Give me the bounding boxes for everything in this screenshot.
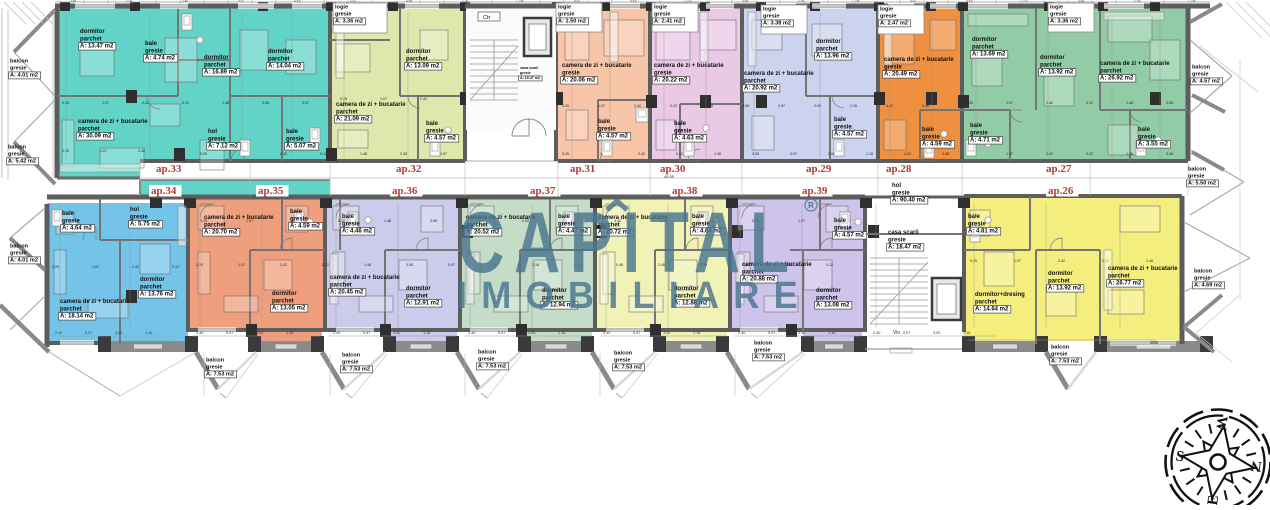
svg-text:3.65: 3.65 xyxy=(1078,0,1084,3)
svg-text:dormitor: dormitor xyxy=(80,29,105,35)
svg-text:0.25: 0.25 xyxy=(62,149,69,153)
svg-text:A: 4.59 m2: A: 4.59 m2 xyxy=(290,224,321,230)
svg-text:4.42: 4.42 xyxy=(886,104,893,108)
svg-text:gresie: gresie xyxy=(763,14,779,20)
svg-text:A: 7.53 m2: A: 7.53 m2 xyxy=(342,367,370,373)
svg-text:A: 20.45 m2: A: 20.45 m2 xyxy=(330,290,364,296)
svg-text:A: 13.05 m2: A: 13.05 m2 xyxy=(272,306,306,312)
svg-text:dormitor: dormitor xyxy=(406,286,431,292)
svg-text:ap.33: ap.33 xyxy=(156,163,182,175)
svg-text:3.65: 3.65 xyxy=(406,0,412,3)
svg-text:0.12: 0.12 xyxy=(172,265,179,269)
svg-text:A: 3.38 m2: A: 3.38 m2 xyxy=(763,21,791,27)
svg-text:parchet: parchet xyxy=(330,282,352,288)
svg-text:2.40: 2.40 xyxy=(854,0,860,3)
svg-text:1.48: 1.48 xyxy=(384,219,391,223)
svg-text:balcon: balcon xyxy=(10,59,29,65)
svg-text:ap.36: ap.36 xyxy=(392,185,418,197)
svg-text:parchet: parchet xyxy=(140,284,162,290)
svg-text:2.40: 2.40 xyxy=(468,331,475,335)
svg-text:A: 20.22 m2: A: 20.22 m2 xyxy=(654,78,688,84)
svg-text:2.40: 2.40 xyxy=(873,331,880,335)
svg-text:0.12: 0.12 xyxy=(320,152,327,156)
svg-text:1.16: 1.16 xyxy=(850,104,857,108)
svg-text:1.48: 1.48 xyxy=(1146,259,1153,263)
svg-text:gresie: gresie xyxy=(562,70,580,76)
svg-text:camera de zi + bucatarie: camera de zi + bucatarie xyxy=(78,119,148,125)
svg-text:A: 18.14 m2: A: 18.14 m2 xyxy=(60,314,94,320)
svg-text:parchet: parchet xyxy=(744,78,766,84)
svg-text:3.08: 3.08 xyxy=(262,101,269,105)
svg-text:1.07: 1.07 xyxy=(1022,0,1028,3)
svg-text:camera de zi + bucatarie: camera de zi + bucatarie xyxy=(330,275,400,281)
svg-text:1.07: 1.07 xyxy=(798,219,805,223)
svg-text:A: 18.47 m2: A: 18.47 m2 xyxy=(520,76,540,80)
svg-text:0.97: 0.97 xyxy=(903,331,910,335)
svg-text:2.40: 2.40 xyxy=(182,0,188,3)
svg-text:ap.27: ap.27 xyxy=(1046,163,1072,175)
svg-text:bale: bale xyxy=(970,123,983,129)
svg-text:2.40: 2.40 xyxy=(738,331,745,335)
svg-text:0.25: 0.25 xyxy=(966,101,973,105)
svg-text:A: 21.09 m2: A: 21.09 m2 xyxy=(336,117,370,123)
svg-text:A: 4.71 m2: A: 4.71 m2 xyxy=(970,138,1001,144)
svg-text:A: 4.81 m2: A: 4.81 m2 xyxy=(968,229,999,235)
svg-text:3.00: 3.00 xyxy=(933,331,940,335)
svg-text:logie: logie xyxy=(335,5,348,11)
svg-text:1.20: 1.20 xyxy=(798,0,804,3)
svg-text:1.07: 1.07 xyxy=(1014,259,1021,263)
svg-text:0.25: 0.25 xyxy=(562,152,569,156)
svg-text:3.00: 3.00 xyxy=(528,331,535,335)
svg-text:3.00: 3.00 xyxy=(393,331,400,335)
svg-text:A: 7.53 m2: A: 7.53 m2 xyxy=(206,372,234,378)
svg-text:dormitor: dormitor xyxy=(268,49,293,55)
svg-text:gresie: gresie xyxy=(335,12,351,18)
svg-text:0.25: 0.25 xyxy=(62,101,69,105)
svg-text:casa scarii: casa scarii xyxy=(888,230,919,236)
svg-text:3.00: 3.00 xyxy=(256,331,263,335)
svg-text:A: 7.53 m2: A: 7.53 m2 xyxy=(614,365,642,371)
svg-text:1.07: 1.07 xyxy=(1006,101,1013,105)
svg-text:A: 13.47 m2: A: 13.47 m2 xyxy=(80,44,114,50)
svg-text:A: 4.01 m2: A: 4.01 m2 xyxy=(10,73,38,79)
svg-text:A: 13.69 m2: A: 13.69 m2 xyxy=(972,52,1006,58)
svg-text:bale: bale xyxy=(145,41,158,47)
svg-text:1.07: 1.07 xyxy=(380,97,387,101)
svg-text:0.25: 0.25 xyxy=(196,263,203,267)
svg-text:A: 4.69 m2: A: 4.69 m2 xyxy=(1194,283,1222,289)
svg-text:0.12: 0.12 xyxy=(1086,101,1093,105)
svg-text:A: 4.57 m2: A: 4.57 m2 xyxy=(426,136,457,142)
svg-text:3.00: 3.00 xyxy=(663,331,670,335)
svg-text:1.48: 1.48 xyxy=(364,263,371,267)
svg-text:A: 7.12 m2: A: 7.12 m2 xyxy=(208,144,239,150)
svg-text:parchet: parchet xyxy=(60,306,82,312)
svg-text:1.07: 1.07 xyxy=(598,104,605,108)
svg-text:gresie: gresie xyxy=(834,225,852,231)
svg-text:gresie: gresie xyxy=(130,214,148,220)
svg-text:A: 12.91 m2: A: 12.91 m2 xyxy=(406,301,440,307)
svg-text:3.65: 3.65 xyxy=(70,0,76,3)
svg-text:balcon: balcon xyxy=(1188,167,1207,173)
svg-text:A: 20.06 m2: A: 20.06 m2 xyxy=(562,78,596,84)
svg-text:2.42: 2.42 xyxy=(634,104,641,108)
svg-text:gresie: gresie xyxy=(1138,134,1156,140)
svg-text:1.48: 1.48 xyxy=(706,104,713,108)
svg-text:1.48: 1.48 xyxy=(1126,152,1133,156)
svg-text:A: 20.92 m2: A: 20.92 m2 xyxy=(744,86,778,92)
svg-text:4.42: 4.42 xyxy=(294,0,300,3)
svg-text:3.08: 3.08 xyxy=(400,152,407,156)
svg-text:balcon: balcon xyxy=(754,341,773,347)
svg-text:parchet: parchet xyxy=(1108,273,1130,279)
svg-text:ap.32: ap.32 xyxy=(396,163,422,175)
svg-text:balcon: balcon xyxy=(1192,65,1211,71)
svg-text:3.08: 3.08 xyxy=(752,152,759,156)
svg-text:2.40: 2.40 xyxy=(518,0,524,3)
svg-text:gresie: gresie xyxy=(1051,352,1067,358)
svg-text:A: 2.47 m2: A: 2.47 m2 xyxy=(880,21,908,27)
svg-text:balcon: balcon xyxy=(206,358,225,364)
svg-text:2.40: 2.40 xyxy=(196,331,203,335)
svg-text:R: R xyxy=(808,201,814,210)
svg-text:ap.26: ap.26 xyxy=(1048,185,1074,197)
svg-text:A: 13.92 m2: A: 13.92 m2 xyxy=(1048,286,1082,292)
svg-text:bale: bale xyxy=(342,214,355,220)
svg-text:A: 4.59 m2: A: 4.59 m2 xyxy=(922,142,953,148)
svg-text:balcon: balcon xyxy=(1194,269,1213,275)
svg-text:A: 4.74 m2: A: 4.74 m2 xyxy=(145,56,176,62)
svg-text:A: 5.07 m2: A: 5.07 m2 xyxy=(286,144,317,150)
svg-text:hol: hol xyxy=(892,183,901,189)
svg-text:A: 18.47 m2: A: 18.47 m2 xyxy=(888,245,922,251)
svg-text:ap.31: ap.31 xyxy=(570,163,595,175)
svg-text:1.07: 1.07 xyxy=(100,149,107,153)
svg-text:gresie: gresie xyxy=(8,152,24,158)
svg-text:A: 5.50 m2: A: 5.50 m2 xyxy=(1188,181,1216,187)
svg-text:gresie: gresie xyxy=(654,70,672,76)
svg-text:gresie: gresie xyxy=(888,237,906,243)
svg-text:4.42: 4.42 xyxy=(630,0,636,3)
svg-text:A: 7.53 m2: A: 7.53 m2 xyxy=(1051,359,1079,365)
svg-text:camera de zi + bucatarie: camera de zi + bucatarie xyxy=(60,299,130,305)
svg-text:gresie: gresie xyxy=(754,348,770,354)
svg-text:logie: logie xyxy=(763,7,776,13)
svg-text:parchet: parchet xyxy=(816,295,838,301)
svg-text:dormitor: dormitor xyxy=(816,39,841,45)
svg-text:A: 3.36 m2: A: 3.36 m2 xyxy=(1050,19,1078,25)
svg-text:gresie: gresie xyxy=(426,128,444,134)
svg-text:A: 4.57 m2: A: 4.57 m2 xyxy=(834,233,865,239)
svg-text:2.42: 2.42 xyxy=(1046,152,1053,156)
svg-text:1.07: 1.07 xyxy=(1006,152,1013,156)
svg-text:4.42: 4.42 xyxy=(904,152,911,156)
svg-text:46.55: 46.55 xyxy=(664,174,675,179)
svg-text:gresie: gresie xyxy=(968,221,986,227)
svg-text:parchet: parchet xyxy=(975,299,997,305)
svg-text:A: 3.55 m2: A: 3.55 m2 xyxy=(1138,142,1169,148)
svg-text:A: 4.57 m2: A: 4.57 m2 xyxy=(834,132,865,138)
svg-text:A: 4.57 m2: A: 4.57 m2 xyxy=(598,134,629,140)
svg-text:0.97: 0.97 xyxy=(448,263,455,267)
svg-text:camera de zi + bucatarie: camera de zi + bucatarie xyxy=(654,63,724,69)
svg-text:camera de zi + bucatarie: camera de zi + bucatarie xyxy=(744,71,814,77)
svg-text:3.08: 3.08 xyxy=(1166,101,1173,105)
svg-text:parchet: parchet xyxy=(816,46,838,52)
svg-text:2.40: 2.40 xyxy=(603,331,610,335)
svg-text:IMOBILIARE: IMOBILIARE xyxy=(457,273,812,316)
svg-text:parchet: parchet xyxy=(972,44,994,50)
svg-text:A: 4.46 m2: A: 4.46 m2 xyxy=(342,229,373,235)
svg-text:1.20: 1.20 xyxy=(126,0,132,3)
svg-text:1.48: 1.48 xyxy=(222,101,229,105)
svg-text:2.40: 2.40 xyxy=(55,331,62,335)
svg-text:3.08: 3.08 xyxy=(1166,152,1173,156)
svg-text:2.42: 2.42 xyxy=(280,263,287,267)
svg-text:1.16: 1.16 xyxy=(145,331,152,335)
svg-text:A: 90.40 m2: A: 90.40 m2 xyxy=(892,198,926,204)
svg-text:gresie: gresie xyxy=(614,358,630,364)
svg-text:hol: hol xyxy=(208,129,217,135)
svg-text:bale: bale xyxy=(922,127,935,133)
svg-text:dormitor: dormitor xyxy=(406,49,431,55)
svg-text:A: 20.49 m2: A: 20.49 m2 xyxy=(884,72,918,78)
svg-text:camera de zi + bucatarie: camera de zi + bucatarie xyxy=(562,63,632,69)
svg-text:ap.34: ap.34 xyxy=(151,185,177,197)
svg-text:camera de zi + bucatarie: camera de zi + bucatarie xyxy=(204,215,274,221)
svg-text:dormitor: dormitor xyxy=(816,288,841,294)
svg-text:3.00: 3.00 xyxy=(798,331,805,335)
svg-text:0.97: 0.97 xyxy=(440,152,447,156)
svg-text:0.12: 0.12 xyxy=(182,101,189,105)
svg-text:parchet: parchet xyxy=(80,36,102,42)
svg-text:balcon: balcon xyxy=(1051,345,1070,351)
svg-text:0.12: 0.12 xyxy=(670,104,677,108)
svg-text:balcon: balcon xyxy=(614,351,633,357)
svg-text:A: 7.53 m2: A: 7.53 m2 xyxy=(478,364,506,370)
svg-text:A: 13.92 m2: A: 13.92 m2 xyxy=(1040,70,1074,76)
svg-text:1.07: 1.07 xyxy=(238,263,245,267)
svg-text:gresie: gresie xyxy=(654,12,670,18)
svg-text:0.48: 0.48 xyxy=(942,152,949,156)
svg-text:bale: bale xyxy=(968,214,981,220)
svg-text:balcon: balcon xyxy=(342,353,361,359)
svg-text:0.97: 0.97 xyxy=(574,0,580,3)
svg-text:1.48: 1.48 xyxy=(1126,101,1133,105)
svg-text:gresie: gresie xyxy=(1194,276,1210,282)
svg-text:1.16: 1.16 xyxy=(286,331,293,335)
svg-text:0.97: 0.97 xyxy=(85,331,92,335)
svg-text:2.42: 2.42 xyxy=(1058,259,1065,263)
svg-text:1.20: 1.20 xyxy=(1134,0,1140,3)
svg-text:gresie: gresie xyxy=(922,134,940,140)
svg-text:0.25: 0.25 xyxy=(52,265,59,269)
svg-text:0.12: 0.12 xyxy=(1086,152,1093,156)
svg-text:ap.35: ap.35 xyxy=(258,185,284,197)
svg-text:2.42: 2.42 xyxy=(138,149,145,153)
svg-text:A: 7.53 m2: A: 7.53 m2 xyxy=(754,355,782,361)
svg-text:bale: bale xyxy=(598,119,611,125)
svg-text:gresie: gresie xyxy=(145,48,163,54)
svg-text:A: 2.41 m2: A: 2.41 m2 xyxy=(654,19,682,25)
svg-text:gresie: gresie xyxy=(10,66,26,72)
svg-text:0.97: 0.97 xyxy=(302,101,309,105)
svg-text:casa scarii: casa scarii xyxy=(520,66,538,70)
svg-text:gresie: gresie xyxy=(286,136,304,142)
svg-text:parchet: parchet xyxy=(406,293,428,299)
svg-text:gresie: gresie xyxy=(598,126,616,132)
svg-text:logie: logie xyxy=(880,7,893,13)
svg-text:2.42: 2.42 xyxy=(132,265,139,269)
svg-text:1.07: 1.07 xyxy=(350,0,356,3)
svg-text:logie: logie xyxy=(558,5,571,11)
svg-text:1.16: 1.16 xyxy=(828,331,835,335)
svg-text:gresie: gresie xyxy=(674,128,692,134)
svg-text:dormitor+dresing: dormitor+dresing xyxy=(975,292,1025,298)
svg-text:parchet: parchet xyxy=(78,126,100,132)
svg-text:1.07: 1.07 xyxy=(686,0,692,3)
svg-text:A: 13.96 m2: A: 13.96 m2 xyxy=(816,54,850,60)
svg-text:gresie: gresie xyxy=(208,136,226,142)
svg-text:A: 4.57 m2: A: 4.57 m2 xyxy=(1192,79,1220,85)
svg-text:ap.39: ap.39 xyxy=(802,185,828,197)
svg-text:camera de zi + bucatarie: camera de zi + bucatarie xyxy=(336,102,406,108)
svg-text:A: 20.70 m2: A: 20.70 m2 xyxy=(204,230,238,236)
svg-text:2.42: 2.42 xyxy=(1046,101,1053,105)
svg-text:gresie: gresie xyxy=(892,190,910,196)
svg-text:0.12: 0.12 xyxy=(322,263,329,267)
svg-text:A: 14.64 m2: A: 14.64 m2 xyxy=(975,307,1009,313)
svg-text:0.12: 0.12 xyxy=(176,149,183,153)
svg-text:2.40: 2.40 xyxy=(1190,0,1196,3)
svg-text:camera de zi + bucatarie: camera de zi + bucatarie xyxy=(1100,61,1170,67)
svg-text:dormitor: dormitor xyxy=(1040,55,1065,61)
svg-text:camera de zi + bucatarie: camera de zi + bucatarie xyxy=(884,57,954,63)
svg-text:gresie: gresie xyxy=(558,12,574,18)
svg-text:Ctr: Ctr xyxy=(483,15,491,21)
svg-text:ap.28: ap.28 xyxy=(886,163,912,175)
svg-text:0.25: 0.25 xyxy=(200,152,207,156)
svg-text:gresie: gresie xyxy=(342,360,358,366)
svg-text:2.42: 2.42 xyxy=(420,97,427,101)
svg-text:4.42: 4.42 xyxy=(966,0,972,3)
svg-text:3.08: 3.08 xyxy=(406,263,413,267)
svg-text:A: 5.42 m2: A: 5.42 m2 xyxy=(8,159,36,165)
svg-text:bale: bale xyxy=(1138,127,1151,133)
svg-text:3.00: 3.00 xyxy=(115,331,122,335)
svg-text:3.08: 3.08 xyxy=(430,219,437,223)
svg-text:hol: hol xyxy=(130,207,139,213)
svg-text:gresie: gresie xyxy=(10,251,26,257)
svg-text:bale: bale xyxy=(426,121,439,127)
svg-text:bale: bale xyxy=(290,209,303,215)
svg-text:A: 3.36 m2: A: 3.36 m2 xyxy=(335,19,363,25)
svg-text:0.12: 0.12 xyxy=(676,152,683,156)
svg-text:dormitor: dormitor xyxy=(1048,271,1073,277)
svg-text:parchet: parchet xyxy=(204,222,226,228)
svg-text:gresie: gresie xyxy=(970,130,988,136)
svg-text:dormitor: dormitor xyxy=(140,277,165,283)
svg-text:0.97: 0.97 xyxy=(498,331,505,335)
svg-text:gresie: gresie xyxy=(342,221,360,227)
svg-text:A: 13.76 m2: A: 13.76 m2 xyxy=(140,292,174,298)
svg-text:3.08: 3.08 xyxy=(742,104,749,108)
svg-text:gresie: gresie xyxy=(1050,12,1066,18)
svg-text:parchet: parchet xyxy=(1048,278,1070,284)
svg-text:1.48: 1.48 xyxy=(360,152,367,156)
svg-text:bale: bale xyxy=(286,129,299,135)
svg-text:0.25: 0.25 xyxy=(562,104,569,108)
svg-text:camera de zi + bucatarie: camera de zi + bucatarie xyxy=(1108,266,1178,272)
svg-text:A: 4.01 m2: A: 4.01 m2 xyxy=(10,258,38,264)
svg-text:balcon: balcon xyxy=(10,244,29,250)
svg-text:bale: bale xyxy=(674,121,687,127)
svg-text:bale: bale xyxy=(62,211,75,217)
svg-text:balcon: balcon xyxy=(478,350,497,356)
svg-text:A: 13.09 m2: A: 13.09 m2 xyxy=(406,64,440,70)
svg-text:1.16: 1.16 xyxy=(866,152,873,156)
svg-text:0.12: 0.12 xyxy=(826,263,833,267)
svg-text:0.97: 0.97 xyxy=(238,0,244,3)
svg-text:1.48: 1.48 xyxy=(714,152,721,156)
svg-text:1.16: 1.16 xyxy=(693,331,700,335)
svg-text:0.25: 0.25 xyxy=(340,97,347,101)
svg-text:2.40: 2.40 xyxy=(333,331,340,335)
svg-text:0.97: 0.97 xyxy=(226,331,233,335)
svg-text:gresie: gresie xyxy=(1192,72,1208,78)
svg-text:A: 16.89 m2: A: 16.89 m2 xyxy=(204,70,238,76)
svg-text:A: 4.64 m2: A: 4.64 m2 xyxy=(62,226,93,232)
svg-text:gresie: gresie xyxy=(1188,174,1204,180)
svg-text:gresie: gresie xyxy=(290,216,308,222)
svg-text:logie: logie xyxy=(654,5,667,11)
svg-text:N: N xyxy=(1250,457,1263,474)
svg-text:A: 14.04 m2: A: 14.04 m2 xyxy=(268,64,302,70)
svg-text:parchet: parchet xyxy=(1100,68,1122,74)
svg-text:dormitor: dormitor xyxy=(272,291,297,297)
svg-text:W: W xyxy=(1212,415,1229,432)
svg-text:bale: bale xyxy=(834,218,847,224)
svg-text:Vin: Vin xyxy=(893,330,900,336)
svg-text:parchet: parchet xyxy=(204,62,226,68)
svg-text:1.16: 1.16 xyxy=(963,331,970,335)
svg-text:1.07: 1.07 xyxy=(92,265,99,269)
svg-text:parchet: parchet xyxy=(268,56,290,62)
svg-text:parchet: parchet xyxy=(336,109,358,115)
svg-text:gresie: gresie xyxy=(884,64,902,70)
svg-text:balcon: balcon xyxy=(8,145,27,151)
svg-text:0.48: 0.48 xyxy=(922,104,929,108)
svg-text:gresie: gresie xyxy=(206,365,222,371)
svg-text:A: 26.77 m2: A: 26.77 m2 xyxy=(1108,281,1142,287)
svg-text:gresie: gresie xyxy=(834,124,852,130)
svg-text:dormitor: dormitor xyxy=(972,37,997,43)
svg-text:bale: bale xyxy=(834,117,847,123)
svg-text:1.20: 1.20 xyxy=(462,0,468,3)
svg-text:2.42: 2.42 xyxy=(280,152,287,156)
svg-text:gresie: gresie xyxy=(520,71,531,75)
svg-text:0.97: 0.97 xyxy=(768,331,775,335)
svg-text:0.97: 0.97 xyxy=(910,0,916,3)
svg-text:1.07: 1.07 xyxy=(102,101,109,105)
svg-text:A: 30.09 m2: A: 30.09 m2 xyxy=(78,134,112,140)
svg-text:0.97: 0.97 xyxy=(363,331,370,335)
svg-text:A: 5.75 m2: A: 5.75 m2 xyxy=(130,222,161,228)
svg-text:1.16: 1.16 xyxy=(558,331,565,335)
svg-text:parchet: parchet xyxy=(1040,62,1062,68)
svg-text:dormitor: dormitor xyxy=(204,55,229,61)
